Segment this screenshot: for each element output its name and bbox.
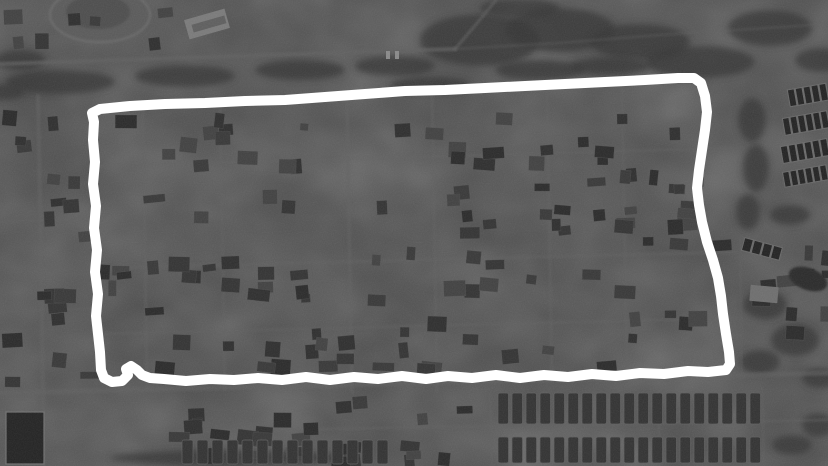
satellite-photo bbox=[0, 0, 828, 466]
satellite-screenshot bbox=[0, 0, 828, 466]
